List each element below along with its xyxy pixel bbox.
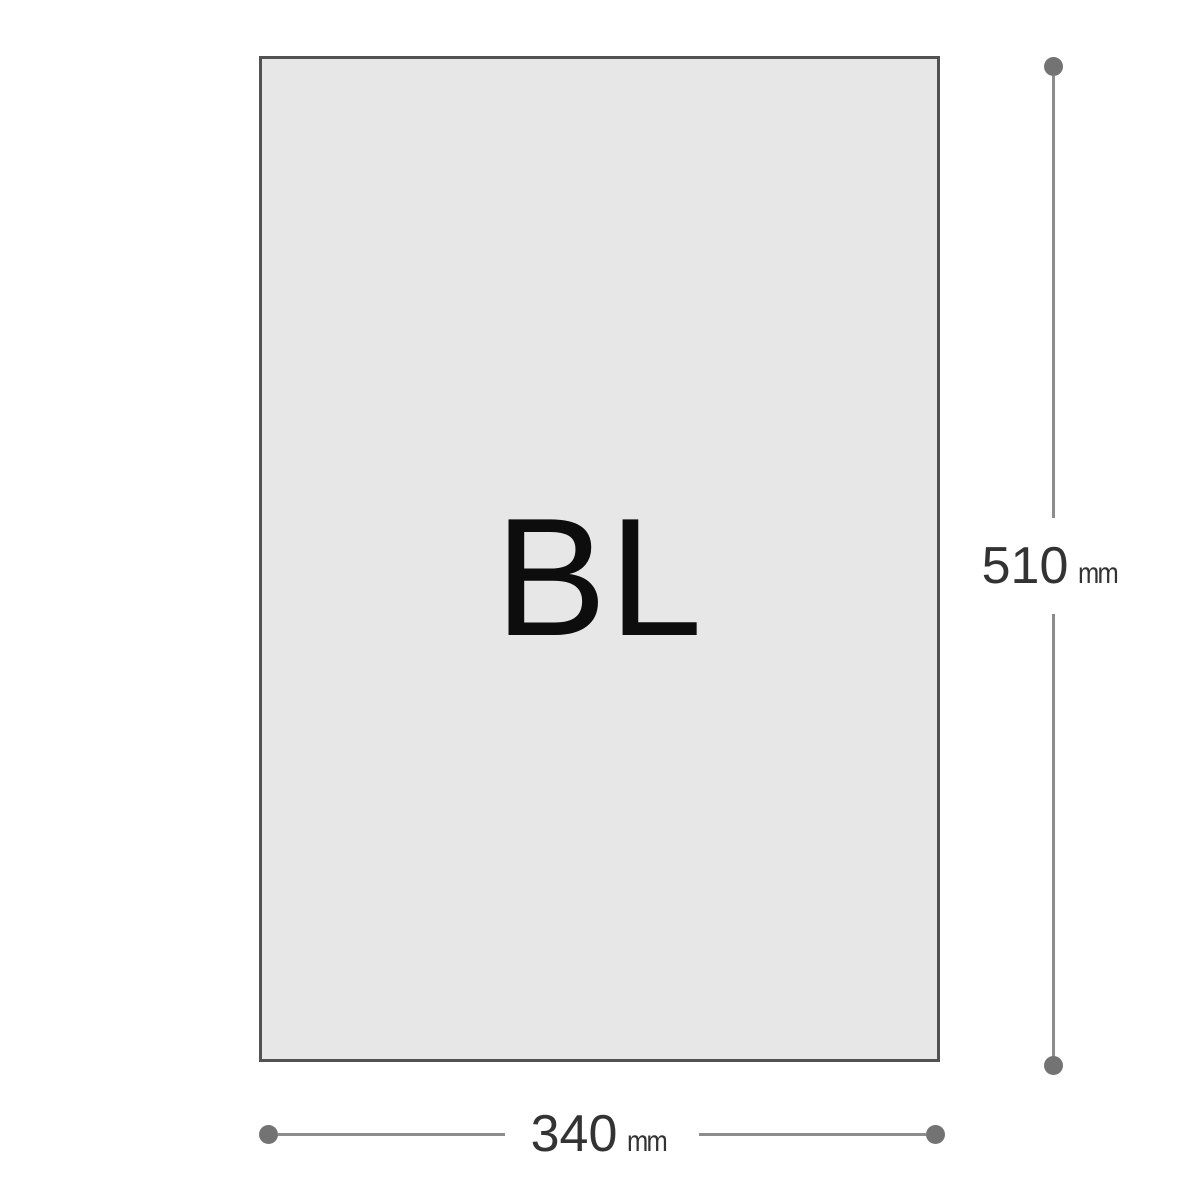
dimension-line-right xyxy=(699,1133,926,1136)
width-dimension: 340 mm xyxy=(259,1104,945,1164)
dimension-endpoint-dot-right xyxy=(926,1125,945,1144)
height-dimension-label: 510 mm xyxy=(982,540,1125,592)
width-value: 340 xyxy=(531,1108,618,1160)
dimension-endpoint-dot-top xyxy=(1044,57,1063,76)
dimension-line-lower xyxy=(1052,614,1055,1056)
dimension-endpoint-dot-left xyxy=(259,1125,278,1144)
paper-rectangle: BL xyxy=(259,56,940,1062)
width-unit: mm xyxy=(627,1127,666,1157)
dimension-line-left xyxy=(278,1133,505,1136)
width-dimension-label: 340 mm xyxy=(531,1108,674,1160)
height-unit: mm xyxy=(1078,559,1117,589)
paper-size-label: BL xyxy=(495,493,705,661)
dimension-endpoint-dot-bottom xyxy=(1044,1056,1063,1075)
size-diagram: BL 510 mm 340 mm xyxy=(0,0,1200,1200)
height-value: 510 xyxy=(982,540,1069,592)
height-dimension: 510 mm xyxy=(968,57,1138,1075)
dimension-line-upper xyxy=(1052,76,1055,518)
